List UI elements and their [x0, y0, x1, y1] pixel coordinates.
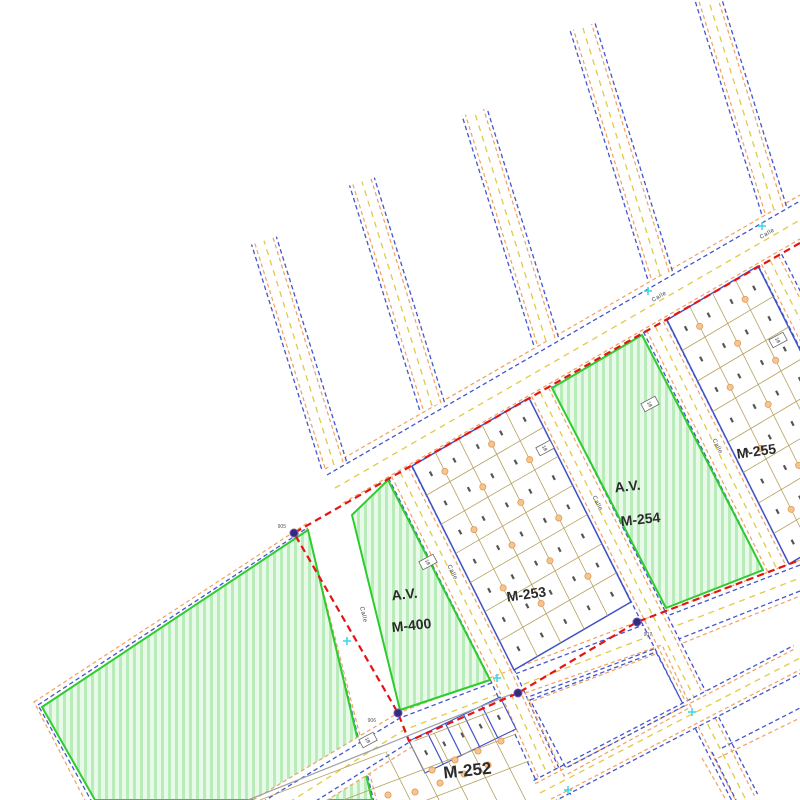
tree-marker [765, 401, 771, 407]
tree-marker [489, 441, 495, 447]
block-label-m252: M-252 [442, 759, 492, 783]
tree-marker [437, 780, 443, 786]
tree-marker [585, 573, 591, 579]
tree-marker [547, 558, 553, 564]
tree-marker [527, 457, 533, 463]
cadastral-map: 9059069071818181818CalleCalleCalleCalleC… [0, 0, 800, 800]
tree-marker [429, 767, 435, 773]
boundary-node-icon [290, 529, 298, 537]
tree-marker [509, 542, 515, 548]
street-name-label: Calle [358, 606, 368, 623]
tree-marker [538, 600, 544, 606]
tree-marker [773, 357, 779, 363]
tree-marker [471, 527, 477, 533]
tree-marker [735, 340, 741, 346]
node-label: 905 [278, 524, 287, 530]
boundary-node-icon [633, 618, 641, 626]
tree-marker [498, 738, 504, 744]
street-band [680, 0, 787, 214]
tree-marker [480, 484, 486, 490]
tree-marker [796, 462, 800, 468]
tree-marker [556, 515, 562, 521]
tree-marker [727, 384, 733, 390]
tree-marker [385, 792, 391, 798]
tree-marker [788, 506, 794, 512]
tree-marker [697, 323, 703, 329]
tree-marker [518, 499, 524, 505]
map-canvas: 9059069071818181818CalleCalleCalleCalleC… [0, 0, 800, 800]
tree-marker [412, 789, 418, 795]
street-band [462, 108, 558, 345]
street-band [252, 237, 347, 469]
street-band [350, 178, 445, 410]
block-label-m254-av: A.V. [614, 477, 641, 496]
street-berm-line [465, 115, 537, 344]
tree-marker [475, 748, 481, 754]
node-label: 906 [368, 718, 377, 724]
block-label-m400-av: A.V. [391, 585, 418, 604]
tree-marker [742, 296, 748, 302]
street-berm-line [484, 109, 556, 338]
tree-marker [442, 468, 448, 474]
node-label: 907 [644, 632, 653, 638]
boundary-node-icon [394, 709, 402, 717]
boundary-node-icon [514, 689, 522, 697]
street-band [570, 23, 672, 279]
corner-curb [722, 708, 800, 748]
